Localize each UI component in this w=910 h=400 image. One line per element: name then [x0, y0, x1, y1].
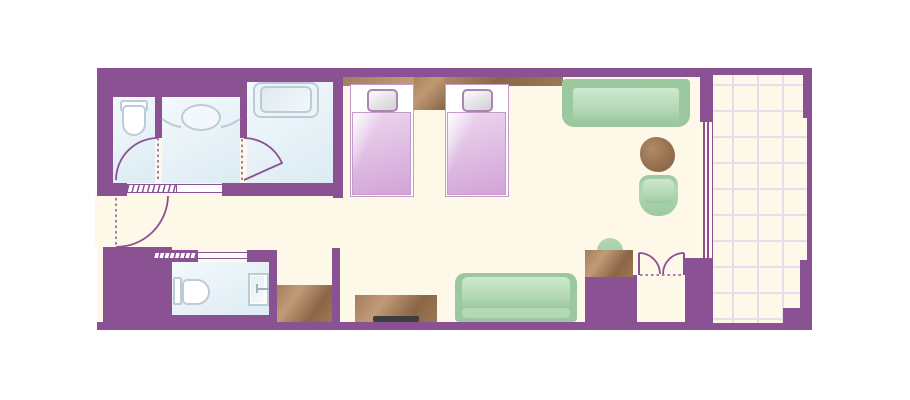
toilet-partition-wall: [155, 97, 162, 138]
balcony-pillar-top-right: [803, 68, 812, 118]
bed-1-pillow: [367, 89, 398, 112]
lower-sofa-seat: [462, 277, 570, 308]
balcony-right-wall: [807, 118, 812, 260]
second-toilet-tank: [173, 277, 182, 305]
vanity-sliding-door: [177, 184, 222, 193]
sliding-door-track-line: [703, 122, 705, 258]
closet-right-wall-block: [685, 258, 713, 330]
balcony-floor: [713, 75, 812, 324]
lower-sofa: [455, 273, 577, 322]
shower-faucet: [257, 288, 269, 290]
bathroom-block-right-wall: [333, 68, 343, 198]
desk: [585, 250, 633, 277]
twin-bed-1: [350, 84, 414, 197]
top-wall-bathrooms: [97, 68, 247, 97]
bathroom-bottom-wall-right: [222, 183, 333, 196]
window-jamb-pillar: [700, 68, 713, 122]
window-sofa-seat: [573, 88, 679, 122]
floor-plan: [0, 0, 910, 400]
toilet-bowl: [122, 105, 146, 136]
sliding-glass-door: [703, 122, 713, 258]
lower-bathroom-right-wall: [269, 258, 277, 322]
bed-1-cover: [352, 112, 411, 195]
armchair: [639, 175, 678, 216]
window-sofa: [562, 79, 690, 127]
twin-bed-2: [445, 84, 509, 197]
top-wall-main: [333, 68, 713, 77]
bed-2-cover: [447, 112, 506, 195]
left-wall: [97, 68, 113, 196]
lower-bathroom-bottom-wall: [172, 315, 269, 325]
lower-bathroom-sliding-door: [198, 252, 247, 259]
sliding-door-track-line: [707, 122, 709, 258]
second-toilet-bowl: [182, 279, 210, 305]
entry-threshold-hatch: [127, 184, 177, 193]
vanity-sink: [181, 104, 221, 131]
lower-bathroom-threshold-hatch: [153, 252, 197, 259]
mid-stub-wall: [332, 248, 340, 322]
vanity-tub-partition-wall: [240, 82, 247, 138]
shower-faucet-handle: [256, 284, 258, 293]
lower-bathroom-top-wall-right: [247, 250, 277, 262]
nightstand: [414, 77, 445, 110]
storage-cabinet: [277, 285, 332, 322]
round-table: [640, 137, 675, 172]
bathroom-bottom-wall-left: [113, 183, 127, 196]
armchair-seat: [643, 179, 674, 203]
entry-recess-floor: [95, 196, 115, 247]
balcony-block-bottom-right-foot: [783, 308, 812, 330]
top-wall-bathtub: [247, 68, 333, 82]
bed-2-pillow: [462, 89, 493, 112]
balcony-top-wall: [713, 68, 812, 75]
lower-left-wall-block: [103, 247, 172, 330]
balcony-block-bottom-right: [800, 260, 812, 310]
lower-sofa-cushion: [462, 308, 570, 318]
sliding-door-track-line: [712, 122, 714, 258]
tv: [373, 316, 419, 322]
desk-wall-block: [585, 275, 637, 330]
bathtub-basin: [260, 86, 312, 113]
